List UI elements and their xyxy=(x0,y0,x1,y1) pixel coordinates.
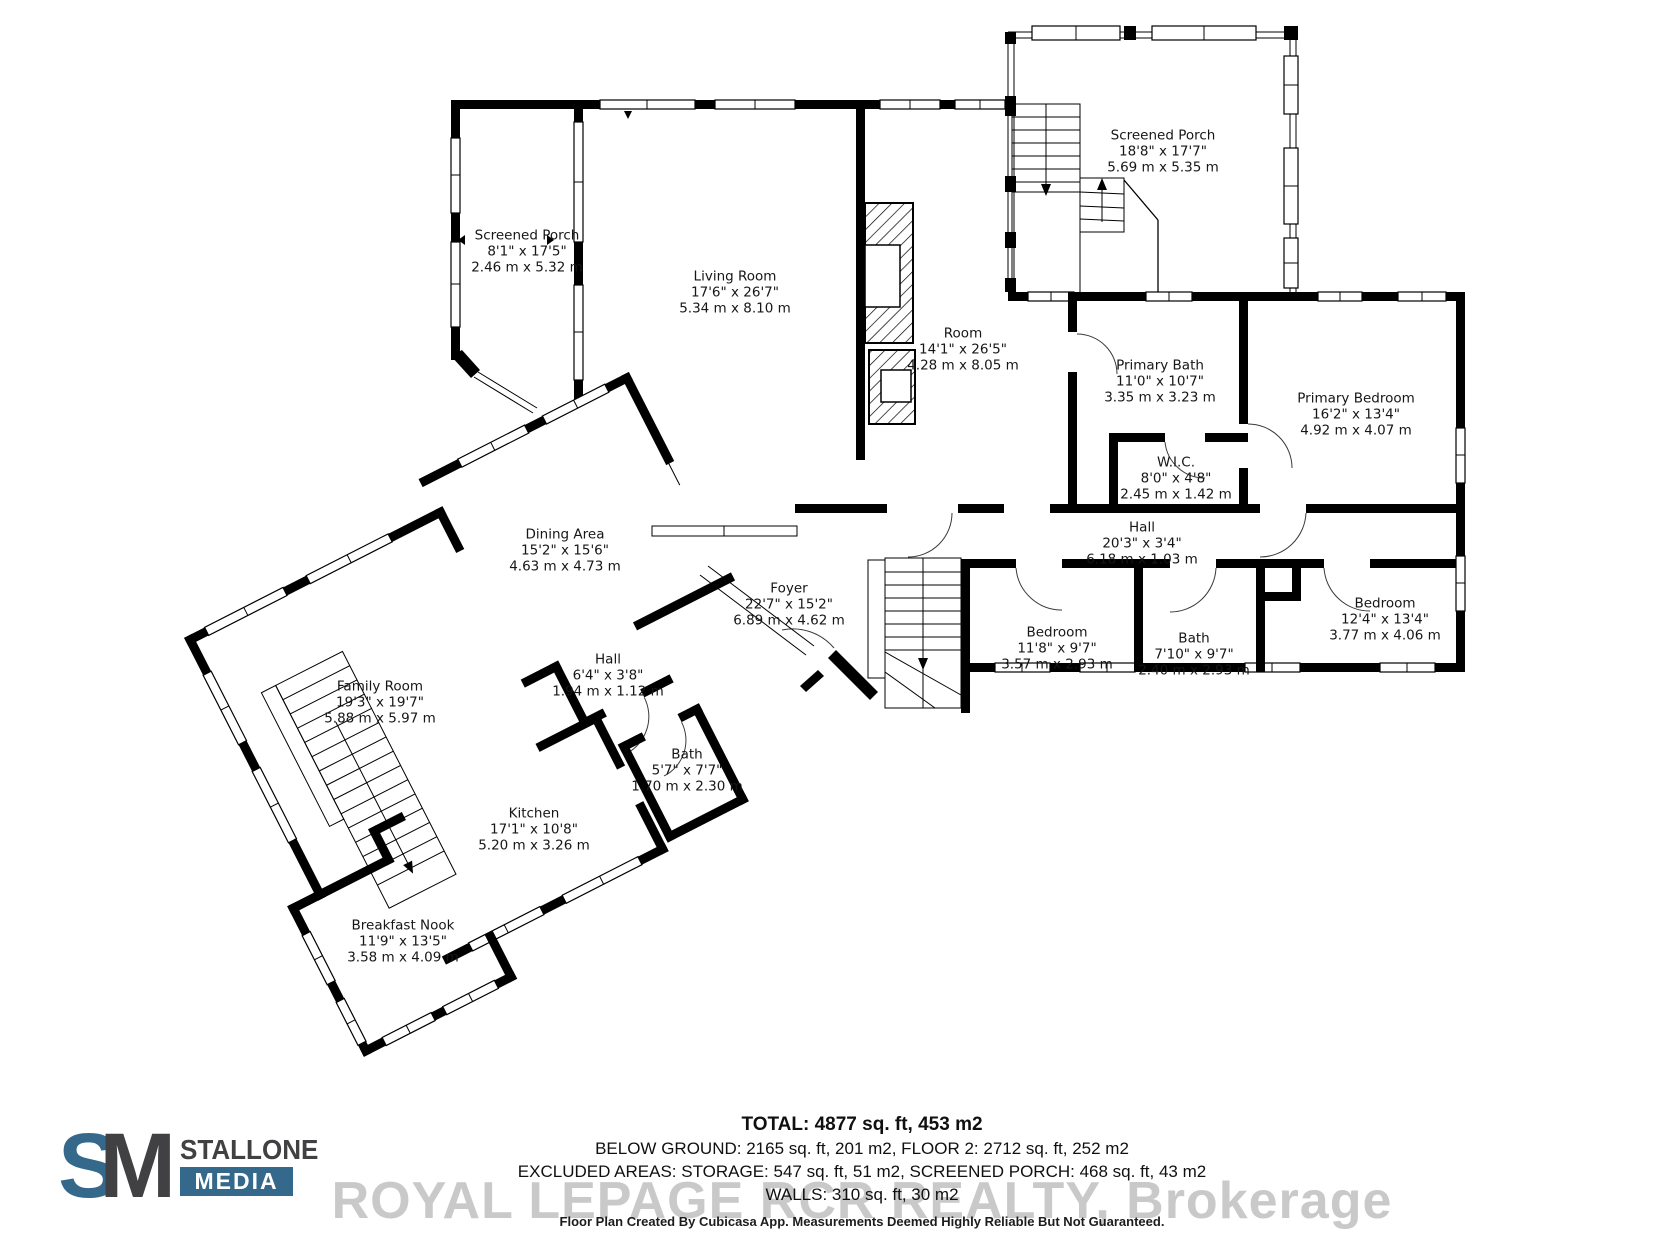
summary-block: TOTAL: 4877 sq. ft, 453 m2 BELOW GROUND:… xyxy=(518,1114,1206,1229)
room-dim-metric: 4.92 m x 4.07 m xyxy=(1297,423,1415,439)
logo-wordmark: STALLONE MEDIA xyxy=(180,1136,329,1196)
room-dim-metric: 5.34 m x 8.10 m xyxy=(679,301,791,317)
room-dim-imperial: 18'8" x 17'7" xyxy=(1107,144,1219,160)
room-dim-imperial: 16'2" x 13'4" xyxy=(1297,407,1415,423)
walls-rotated-wing xyxy=(141,372,851,1057)
room-dim-imperial: 6'4" x 3'8" xyxy=(552,668,664,684)
room-label-living-room: Living Room 17'6" x 26'7" 5.34 m x 8.10 … xyxy=(679,269,791,318)
room-dim-imperial: 14'1" x 26'5" xyxy=(907,342,1019,358)
room-dim-metric: 2.45 m x 1.42 m xyxy=(1120,487,1232,503)
walls-area: WALLS: 310 sq. ft, 30 m2 xyxy=(518,1185,1206,1205)
room-name: Breakfast Nook xyxy=(347,918,459,934)
room-name: Primary Bedroom xyxy=(1297,391,1415,407)
room-label-family-room: Family Room 19'3" x 19'7" 5.88 m x 5.97 … xyxy=(324,679,436,728)
room-dim-metric: 3.57 m x 2.93 m xyxy=(1001,657,1113,673)
room-label-breakfast-nook: Breakfast Nook 11'9" x 13'5" 3.58 m x 4.… xyxy=(347,918,459,967)
room-name: Bedroom xyxy=(1001,625,1113,641)
room-dim-metric: 6.18 m x 1.03 m xyxy=(1086,552,1198,568)
room-dim-imperial: 12'4" x 13'4" xyxy=(1329,612,1441,628)
room-dim-metric: 3.58 m x 4.09 m xyxy=(347,950,459,966)
room-dim-imperial: 7'10" x 9'7" xyxy=(1138,647,1250,663)
stallone-media-logo: SM STALLONE MEDIA xyxy=(58,1131,329,1203)
room-label-hall-lower: Hall 6'4" x 3'8" 1.94 m x 1.12 m xyxy=(552,652,664,701)
room-dim-imperial: 11'0" x 10'7" xyxy=(1104,374,1216,390)
room-dim-imperial: 15'2" x 15'6" xyxy=(509,543,621,559)
room-dim-imperial: 22'7" x 15'2" xyxy=(733,597,845,613)
room-label-kitchen: Kitchen 17'1" x 10'8" 5.20 m x 3.26 m xyxy=(478,806,590,855)
total-area: TOTAL: 4877 sq. ft, 453 m2 xyxy=(518,1114,1206,1136)
room-label-screened-porch-right: Screened Porch 18'8" x 17'7" 5.69 m x 5.… xyxy=(1107,128,1219,177)
room-name: Screened Porch xyxy=(471,228,583,244)
room-dim-imperial: 17'6" x 26'7" xyxy=(679,285,791,301)
room-dim-imperial: 19'3" x 19'7" xyxy=(324,695,436,711)
room-name: Hall xyxy=(552,652,664,668)
room-dim-metric: 2.40 m x 2.93 m xyxy=(1138,663,1250,679)
room-dim-metric: 5.88 m x 5.97 m xyxy=(324,711,436,727)
room-label-screened-porch-left: Screened Porch 8'1" x 17'5" 2.46 m x 5.3… xyxy=(471,228,583,277)
room-name: Living Room xyxy=(679,269,791,285)
room-dim-imperial: 8'1" x 17'5" xyxy=(471,244,583,260)
room-dim-metric: 3.77 m x 4.06 m xyxy=(1329,628,1441,644)
room-dim-metric: 5.69 m x 5.35 m xyxy=(1107,160,1219,176)
room-dim-imperial: 11'9" x 13'5" xyxy=(347,934,459,950)
below-ground-area: BELOW GROUND: 2165 sq. ft, 201 m2, FLOOR… xyxy=(518,1139,1206,1159)
room-dim-metric: 6.89 m x 4.62 m xyxy=(733,613,845,629)
excluded-areas: EXCLUDED AREAS: STORAGE: 547 sq. ft, 51 … xyxy=(518,1162,1206,1182)
room-dim-metric: 4.28 m x 8.05 m xyxy=(907,358,1019,374)
room-name: Bath xyxy=(631,747,743,763)
logo-letter-m: M xyxy=(99,1131,170,1203)
room-dim-imperial: 20'3" x 3'4" xyxy=(1086,536,1198,552)
room-label-room: Room 14'1" x 26'5" 4.28 m x 8.05 m xyxy=(907,326,1019,375)
room-dim-imperial: 11'8" x 9'7" xyxy=(1001,641,1113,657)
room-name: Hall xyxy=(1086,520,1198,536)
room-dim-imperial: 8'0" x 4'8" xyxy=(1120,471,1232,487)
room-label-bedroom-1: Bedroom 11'8" x 9'7" 3.57 m x 2.93 m xyxy=(1001,625,1113,674)
room-dim-metric: 2.46 m x 5.32 m xyxy=(471,260,583,276)
room-label-foyer: Foyer 22'7" x 15'2" 6.89 m x 4.62 m xyxy=(733,581,845,630)
room-dim-imperial: 5'7" x 7'7" xyxy=(631,763,743,779)
logo-sm-monogram: SM xyxy=(58,1131,170,1203)
room-label-bath-upper: Bath 7'10" x 9'7" 2.40 m x 2.93 m xyxy=(1138,631,1250,680)
room-dim-imperial: 17'1" x 10'8" xyxy=(478,822,590,838)
room-label-primary-bedroom: Primary Bedroom 16'2" x 13'4" 4.92 m x 4… xyxy=(1297,391,1415,440)
room-name: Primary Bath xyxy=(1104,358,1216,374)
room-dim-metric: 4.63 m x 4.73 m xyxy=(509,559,621,575)
room-dim-metric: 3.35 m x 3.23 m xyxy=(1104,390,1216,406)
room-name: Dining Area xyxy=(509,527,621,543)
room-label-hall-upper: Hall 20'3" x 3'4" 6.18 m x 1.03 m xyxy=(1086,520,1198,569)
floorplan-canvas: Screened Porch 8'1" x 17'5" 2.46 m x 5.3… xyxy=(0,0,1680,1260)
room-name: W.I.C. xyxy=(1120,455,1232,471)
room-name: Family Room xyxy=(324,679,436,695)
room-name: Room xyxy=(907,326,1019,342)
room-label-bedroom-2: Bedroom 12'4" x 13'4" 3.77 m x 4.06 m xyxy=(1329,596,1441,645)
room-name: Bedroom xyxy=(1329,596,1441,612)
logo-stallone-text: STALLONE xyxy=(180,1136,318,1164)
room-name: Bath xyxy=(1138,631,1250,647)
room-dim-metric: 5.20 m x 3.26 m xyxy=(478,838,590,854)
room-label-primary-bath: Primary Bath 11'0" x 10'7" 3.35 m x 3.23… xyxy=(1104,358,1216,407)
room-label-dining-area: Dining Area 15'2" x 15'6" 4.63 m x 4.73 … xyxy=(509,527,621,576)
room-dim-metric: 1.94 m x 1.12 m xyxy=(552,684,664,700)
room-name: Screened Porch xyxy=(1107,128,1219,144)
room-name: Kitchen xyxy=(478,806,590,822)
room-dim-metric: 1.70 m x 2.30 m xyxy=(631,779,743,795)
room-label-wic: W.I.C. 8'0" x 4'8" 2.45 m x 1.42 m xyxy=(1120,455,1232,504)
room-name: Foyer xyxy=(733,581,845,597)
room-label-bath-lower: Bath 5'7" x 7'7" 1.70 m x 2.30 m xyxy=(631,747,743,796)
disclaimer-text: Floor Plan Created By Cubicasa App. Meas… xyxy=(518,1214,1206,1229)
logo-media-text: MEDIA xyxy=(180,1167,293,1196)
